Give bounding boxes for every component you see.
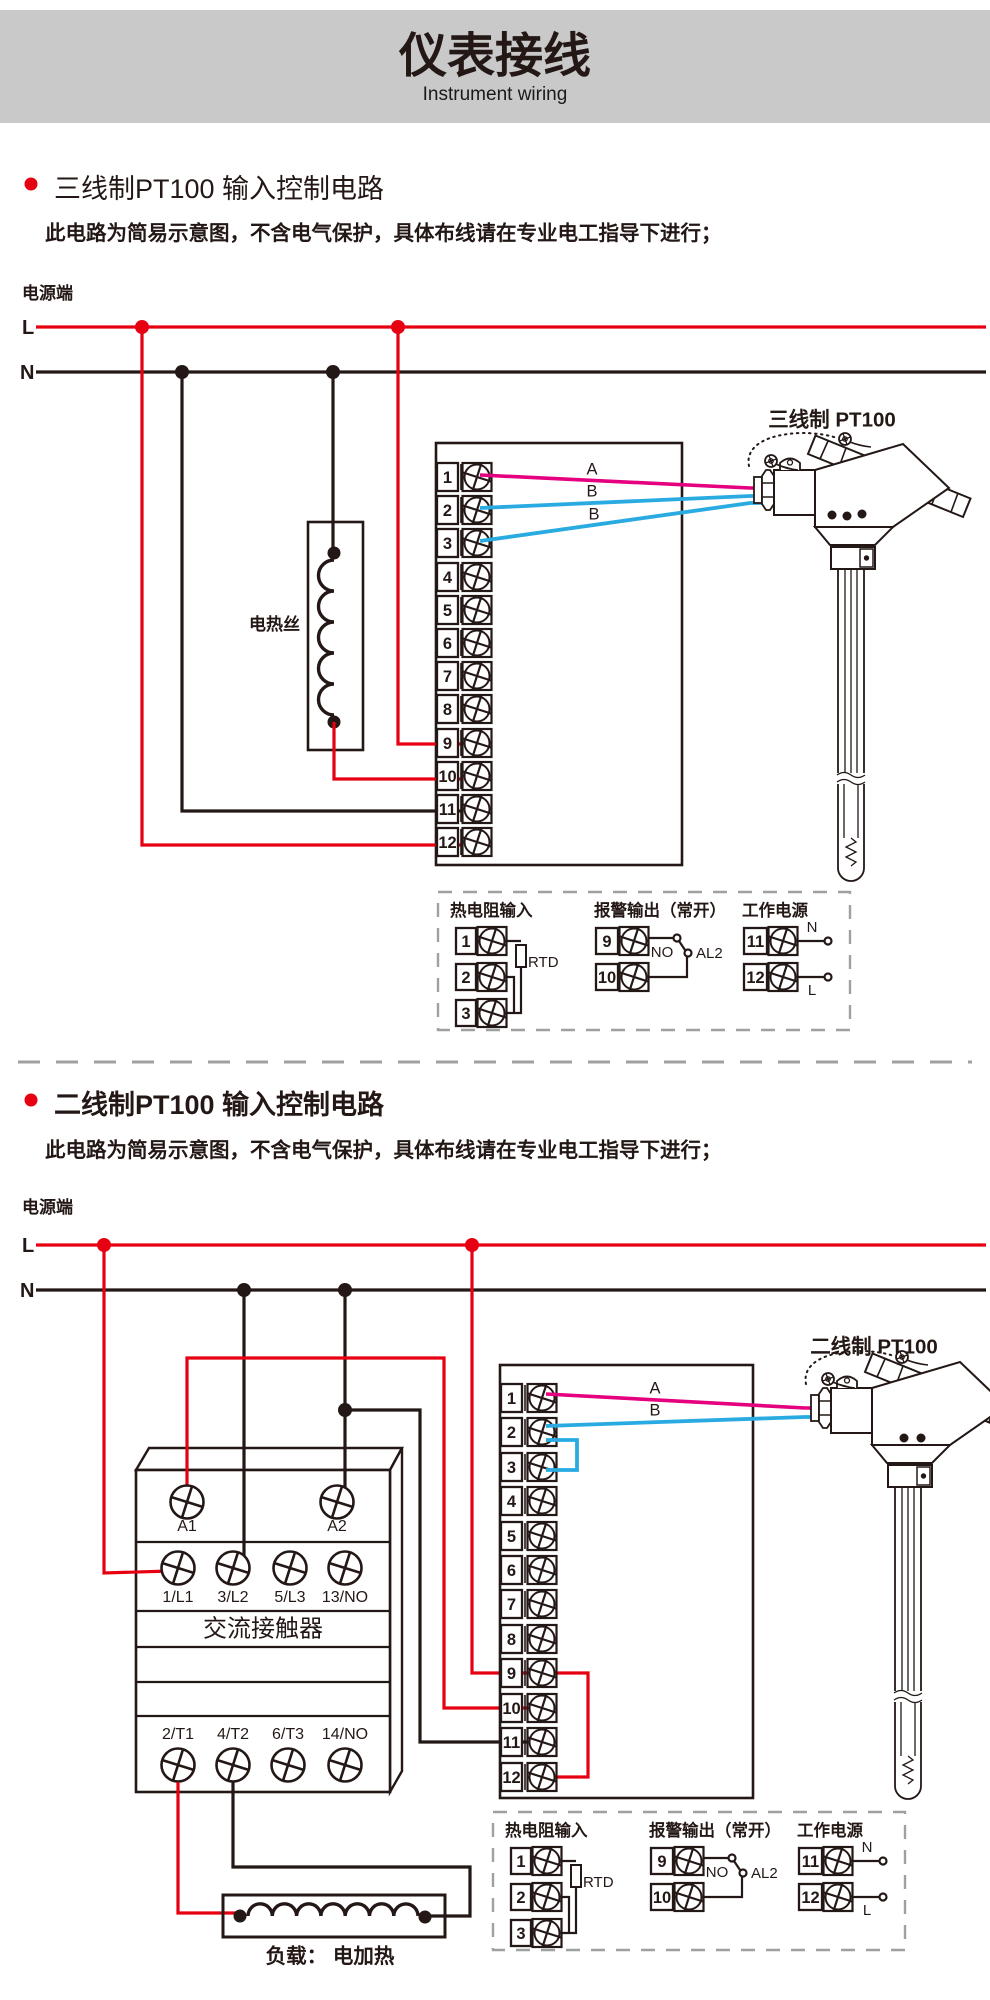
heater-label: 电热丝 [249,614,300,634]
three-wire-pt100-sensor [749,433,971,881]
section1-note: 此电路为简易示意图，不含电气保护，具体布线请在专业电工指导下进行； [45,221,722,245]
wire-l-to-12 [142,327,483,845]
contactor-label: 交流接触器 [203,1615,323,1642]
s2-wire-a-label: A [649,1379,660,1397]
contactor-2t1-label: 2/T1 [162,1726,194,1743]
s2-terminal-2: 2 [507,1424,516,1442]
s1-terminal-7: 7 [443,668,452,686]
section-three-wire: 三线制PT100 输入控制电路 此电路为简易示意图，不含电气保护，具体布线请在专… [20,174,986,1030]
bullet-icon [25,1094,38,1107]
s1-terminal-5: 5 [443,602,452,620]
page-title: 仪表接线 [398,30,591,83]
s1-terminal-12: 12 [438,834,456,852]
s1-sensor-label: 三线制 PT100 [768,407,896,431]
s1-terminal-3: 3 [443,535,452,553]
contactor-6t3-label: 6/T3 [272,1726,304,1743]
section1-l-label: L [22,317,34,339]
s2-terminal-7: 7 [507,1596,516,1614]
section2-legend [493,1812,905,1950]
contactor-13no-label: 13/NO [322,1589,368,1606]
s2-terminal-3: 3 [507,1459,516,1477]
contactor-1l1-label: 1/L1 [162,1589,193,1606]
section2-power-label: 电源端 [22,1197,73,1217]
s1-wire-b1-label: B [586,482,597,500]
load-coil [248,1904,418,1916]
contactor-4t2-label: 4/T2 [217,1726,249,1743]
section2-l-label: L [22,1235,34,1257]
s2-terminal-9: 9 [507,1665,516,1683]
section2-note: 此电路为简易示意图，不含电气保护，具体布线请在专业电工指导下进行； [45,1138,722,1162]
s2-terminal-12: 12 [502,1769,520,1787]
section2-n-label: N [20,1280,34,1302]
contactor-3l2-label: 3/L2 [217,1589,248,1606]
jumper-9-to-12 [543,1673,588,1777]
s1-terminal-4: 4 [443,569,453,587]
instrument-wiring-page: 热电阻输入 1 2 3 RTD 报警输出（常开） 9 10 NO AL2 工作电… [0,0,990,2000]
section1-terminal-strip: 1 2 3 4 5 6 7 8 9 10 11 12 [437,463,492,856]
s1-terminal-9: 9 [443,735,452,753]
load-box [223,1895,445,1937]
bullet-icon [25,178,38,191]
wiring-diagram-canvas: 热电阻输入 1 2 3 RTD 报警输出（常开） 9 10 NO AL2 工作电… [0,0,990,2000]
s1-terminal-1: 1 [443,469,452,487]
s2-wire-b-label: B [649,1401,660,1419]
contactor-a2-label: A2 [327,1518,347,1535]
section1-power-label: 电源端 [22,283,73,303]
s2-terminal-10: 10 [502,1700,520,1718]
two-wire-pt100-sensor [806,1351,990,1799]
s2-terminal-6: 6 [507,1562,516,1580]
heater-coil [318,560,334,715]
contactor-5l3-label: 5/L3 [274,1589,305,1606]
s2-terminal-11: 11 [503,1734,520,1752]
s2-sensor-label: 二线制 PT100 [810,1334,938,1358]
s2-terminal-8: 8 [507,1631,516,1649]
s1-terminal-10: 10 [438,768,456,786]
page-subtitle: Instrument wiring [423,84,568,105]
section-two-wire: 二线制PT100 输入控制电路 此电路为简易示意图，不含电气保护，具体布线请在专… [20,1089,990,1968]
load-label: 负载： 电加热 [266,1944,395,1968]
contactor-a1-label: A1 [177,1518,197,1535]
s1-terminal-6: 6 [443,635,452,653]
section1-legend [438,892,850,1030]
s2-terminal-5: 5 [507,1528,516,1546]
section1-heading: 三线制PT100 输入控制电路 [54,174,384,204]
section1-n-label: N [20,362,34,384]
s2-terminal-4: 4 [507,1493,517,1511]
s1-terminal-11: 11 [439,801,456,819]
section2-heading: 二线制PT100 输入控制电路 [54,1089,385,1120]
s1-wire-a-label: A [586,460,597,478]
s1-terminal-2: 2 [443,502,452,520]
section2-terminal-strip: 1 2 3 4 5 6 7 8 9 10 11 12 [501,1384,557,1791]
s1-wire-b2-label: B [588,505,599,523]
s2-terminal-1: 1 [507,1390,516,1408]
contactor-14no-label: 14/NO [322,1726,368,1743]
s1-terminal-8: 8 [443,701,452,719]
wire-2t1-to-load [178,1782,236,1913]
